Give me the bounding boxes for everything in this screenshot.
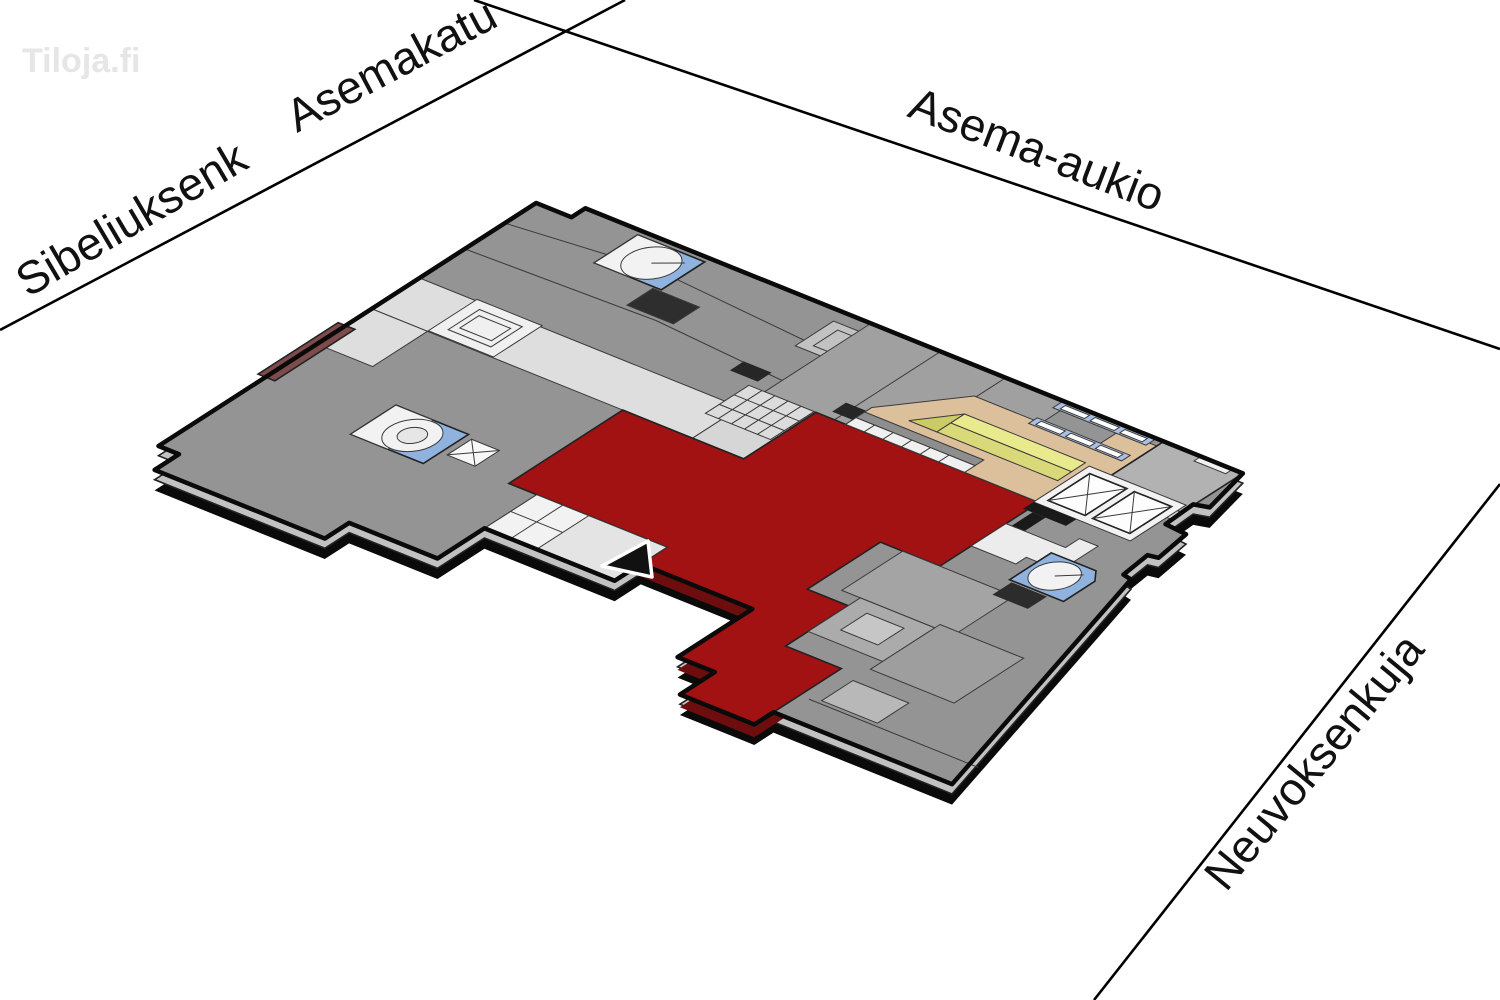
street-label-asemakatu: Asemakatu bbox=[277, 0, 505, 142]
site-logo: Tiloja.fi bbox=[22, 42, 140, 80]
street-label-asema-aukio: Asema-aukio bbox=[902, 77, 1171, 222]
street-label-neuvoksenkuja: Neuvoksenkuja bbox=[1194, 623, 1434, 899]
floorplan-map-page: Tiloja.fi Sibeliuksenk Asemakatu Asema-a… bbox=[0, 0, 1500, 1000]
building-floorplan bbox=[95, 191, 1381, 817]
map-canvas: Tiloja.fi Sibeliuksenk Asemakatu Asema-a… bbox=[0, 0, 1500, 1000]
street-label-sibeliuksenkatu: Sibeliuksenk bbox=[7, 130, 257, 306]
